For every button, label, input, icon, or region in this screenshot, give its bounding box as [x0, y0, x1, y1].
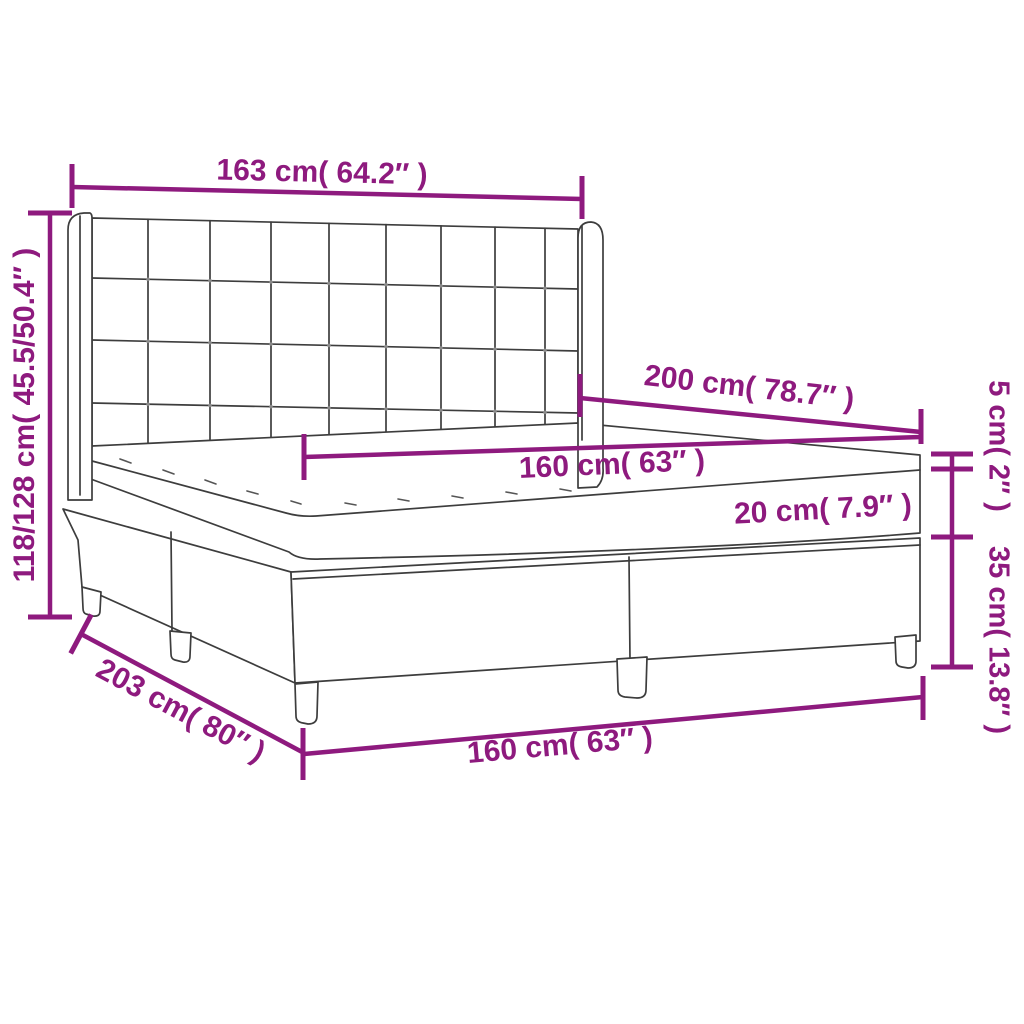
tuft-button [493, 285, 497, 289]
leg-front-corner [295, 682, 318, 724]
dim-label-headboard-width: 163 cm( 64.2″ ) [216, 154, 428, 192]
dim-label-base-width: 160 cm( 63″ ) [466, 721, 654, 770]
tuft-button [543, 348, 547, 352]
tuft-button [543, 286, 547, 290]
tuft-button [146, 402, 150, 406]
base-foot-face [291, 538, 920, 683]
dim-overall-height: 118/128 cm( 45.5/50.4″ ) [8, 213, 72, 617]
tuft-button [146, 277, 150, 281]
bed-dimension-diagram: 163 cm( 64.2″ ) 118/128 cm( 45.5/50.4″ )… [0, 0, 1024, 1024]
tuft-button [146, 339, 150, 343]
headboard-panel [92, 218, 578, 452]
tuft-button [269, 342, 273, 346]
tuft-button [327, 406, 331, 410]
dim-right-stack: 5 cm( 2″ ) 35 cm( 13.8″ ) [931, 380, 1014, 734]
leg-left [82, 587, 101, 616]
leg-foot-right [895, 635, 916, 668]
tuft-button [493, 347, 497, 351]
tuft-button [384, 345, 388, 349]
tuft-button [208, 404, 212, 408]
tuft-button [208, 279, 212, 283]
base-foot-seam [629, 557, 630, 661]
tuft-button [543, 411, 547, 415]
tuft-button [208, 341, 212, 345]
diagram-canvas: 163 cm( 64.2″ ) 118/128 cm( 45.5/50.4″ )… [0, 0, 1024, 1024]
dim-label-base-length: 203 cm( 80″ ) [91, 652, 271, 769]
tuft-button [269, 280, 273, 284]
dim-tick-top [71, 615, 92, 654]
tuft-button [439, 346, 443, 350]
tuft-button [384, 283, 388, 287]
tuft-button [327, 282, 331, 286]
dim-label-topper-height: 5 cm( 2″ ) [982, 380, 1014, 512]
tuft-button [269, 405, 273, 409]
leg-left-middle [170, 631, 191, 662]
base-left-seam [171, 532, 172, 631]
tuft-button [327, 344, 331, 348]
leg-foot-middle [617, 657, 647, 698]
bed-illustration [63, 213, 920, 724]
dim-label-overall-height: 118/128 cm( 45.5/50.4″ ) [8, 248, 41, 583]
dim-headboard-width: 163 cm( 64.2″ ) [72, 154, 582, 219]
dim-base-width: 160 cm( 63″ ) [303, 676, 923, 780]
mattress [88, 423, 920, 559]
tuft-button [439, 408, 443, 412]
dim-label-base-height: 35 cm( 13.8″ ) [982, 546, 1014, 734]
tuft-button [493, 409, 497, 413]
tuft-button [384, 407, 388, 411]
tuft-button [439, 284, 443, 288]
